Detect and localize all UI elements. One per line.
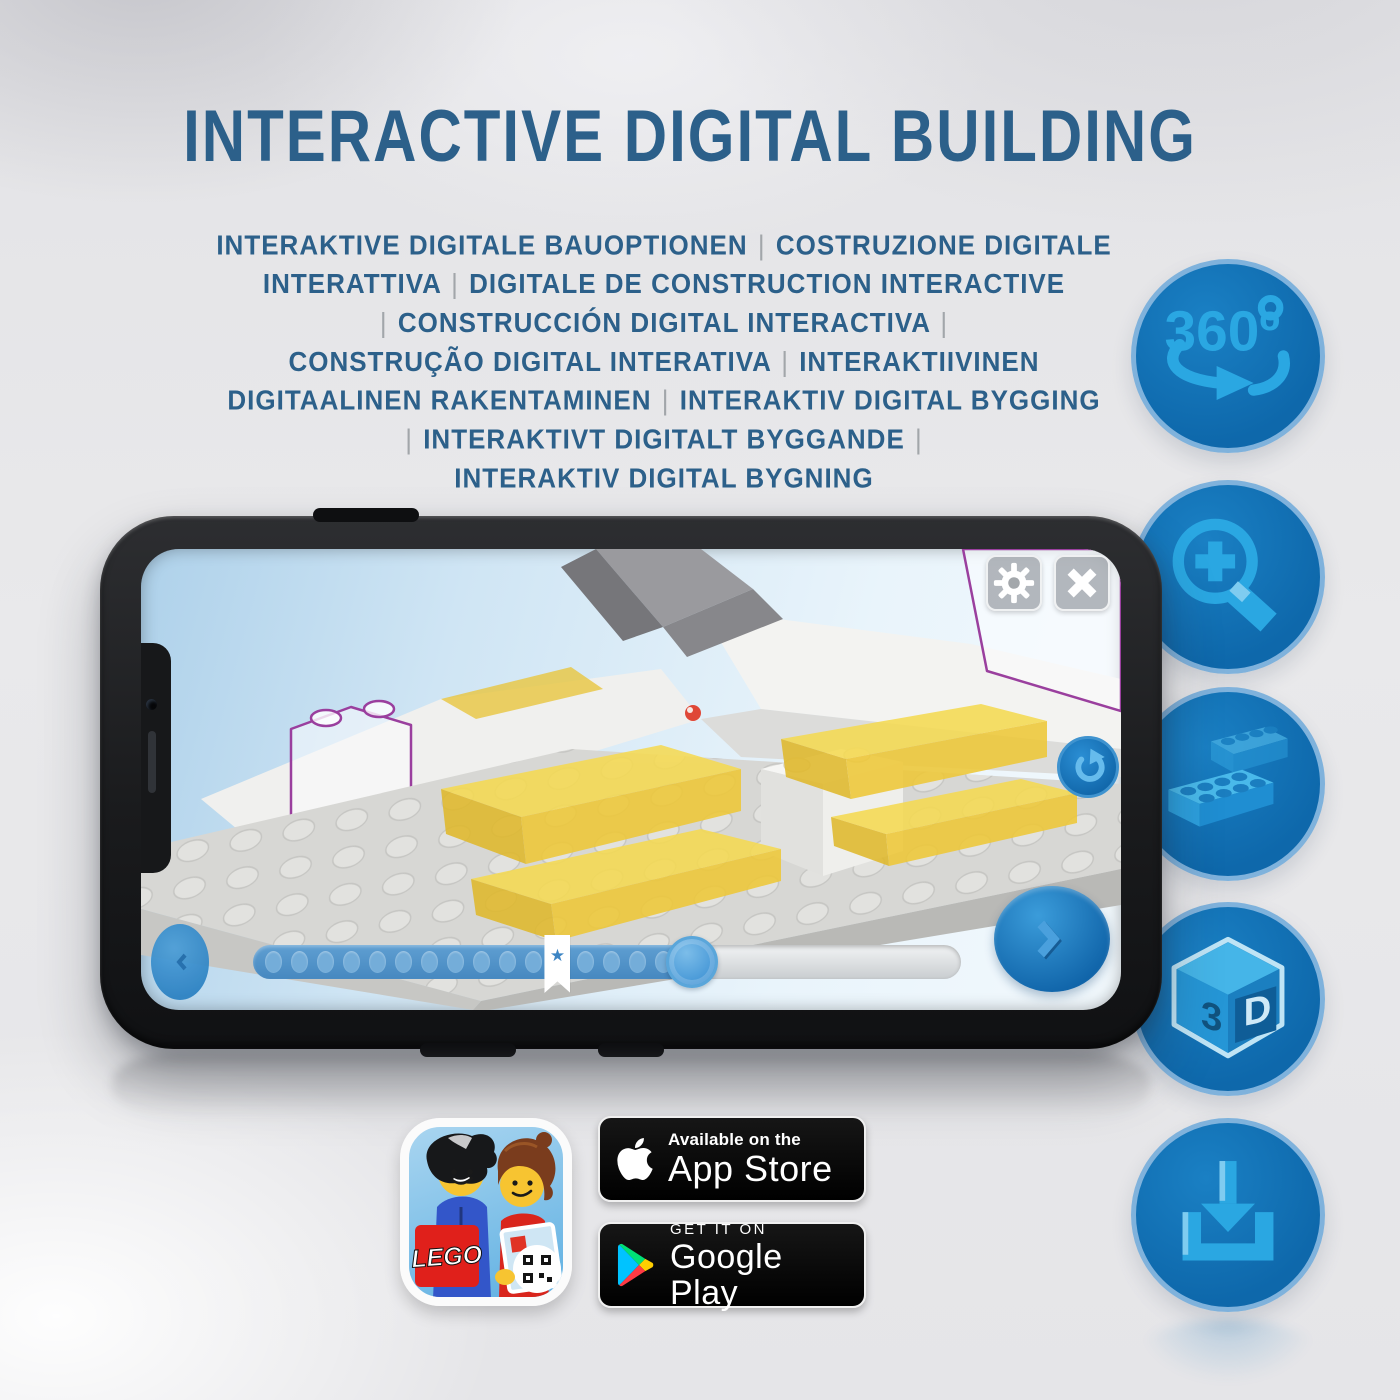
step-dot	[473, 951, 490, 973]
step-dot	[577, 951, 594, 973]
google-play-icon	[614, 1241, 658, 1289]
slider-thumb[interactable]	[666, 936, 718, 988]
lego-3d-scene	[141, 549, 1121, 1010]
step-dot	[369, 951, 386, 973]
chevron-right-icon	[1019, 906, 1085, 972]
google-play-tagline: GET IT ON	[670, 1220, 850, 1239]
previous-step-button[interactable]	[151, 924, 209, 1000]
settings-button[interactable]	[986, 555, 1042, 611]
app-screen: ★	[141, 549, 1121, 1010]
star-icon: ★	[550, 946, 565, 965]
step-dot	[291, 951, 308, 973]
step-dot	[447, 951, 464, 973]
earpiece-speaker	[148, 731, 156, 793]
360-rotation-icon: 360º	[1157, 285, 1299, 427]
download-icon	[1157, 1144, 1299, 1286]
step-dot	[499, 951, 516, 973]
front-camera	[146, 699, 157, 710]
circle-reflection	[1137, 1320, 1319, 1384]
lego-logo-text: LEGO	[410, 1241, 483, 1274]
step-dot	[265, 951, 282, 973]
build-progress-slider[interactable]: ★	[253, 945, 961, 979]
app-store-tagline: Available on the	[668, 1130, 833, 1150]
feature-360-rotation: 360º	[1131, 259, 1325, 453]
phone-notch	[141, 643, 171, 873]
rotate-view-button[interactable]	[1057, 736, 1119, 798]
step-dot	[395, 951, 412, 973]
rotate-icon	[1068, 747, 1108, 787]
close-icon	[1061, 562, 1103, 604]
svg-text:D: D	[1244, 987, 1272, 1035]
slider-fill	[253, 945, 702, 979]
step-dot	[603, 951, 620, 973]
lego-app-illustration: LEGO	[409, 1127, 563, 1297]
step-dot	[317, 951, 334, 973]
red-accent-piece	[685, 705, 701, 721]
phone-reflection	[112, 1052, 1150, 1118]
chevron-left-icon	[165, 947, 195, 977]
google-play-name: Google Play	[670, 1239, 850, 1311]
phone-mockup: ★	[100, 516, 1162, 1049]
page-title: INTERACTIVE DIGITAL BUILDING	[0, 94, 1380, 178]
close-button[interactable]	[1054, 555, 1110, 611]
marketing-graphic: INTERACTIVE DIGITAL BUILDING INTERAKTIVE…	[0, 0, 1400, 1400]
app-store-badge[interactable]: Available on the App Store	[598, 1116, 866, 1202]
lego-app-icon[interactable]: LEGO	[400, 1118, 572, 1306]
stacked-bricks-icon	[1157, 713, 1299, 855]
step-dot	[629, 951, 646, 973]
next-step-button[interactable]	[994, 886, 1110, 992]
step-dot	[421, 951, 438, 973]
3d-cube-icon: 3 D	[1157, 928, 1299, 1070]
feature-download	[1131, 1118, 1325, 1312]
svg-text:3: 3	[1201, 994, 1222, 1042]
subtitle-multilingual: INTERAKTIVE DIGITALE BAUOPTIONEN | COSTR…	[0, 226, 1328, 498]
step-dot	[525, 951, 542, 973]
app-store-name: App Store	[668, 1150, 833, 1188]
apple-icon	[614, 1135, 656, 1183]
gear-icon	[991, 560, 1037, 606]
zoom-in-icon	[1157, 506, 1299, 648]
step-dot	[343, 951, 360, 973]
google-play-badge[interactable]: GET IT ON Google Play	[598, 1222, 866, 1308]
phone-side-button	[313, 508, 419, 522]
